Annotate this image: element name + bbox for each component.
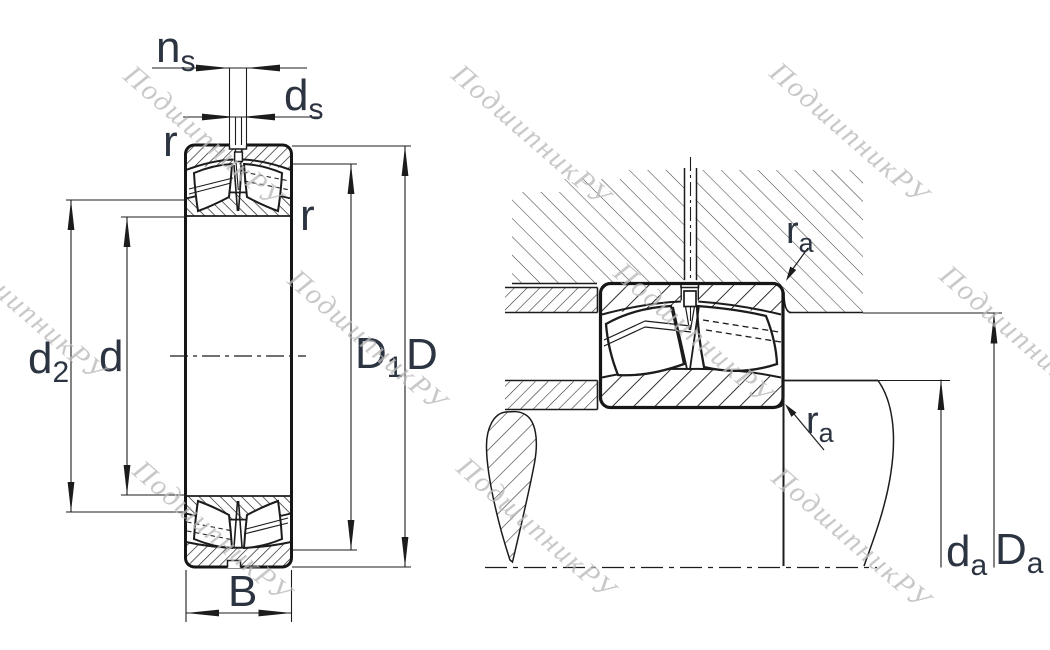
dimension-d xyxy=(124,217,131,495)
watermark-text: ПодшипникРУ xyxy=(450,450,624,607)
label-r-right: r xyxy=(300,191,315,240)
watermark-text: ПодшипникРУ xyxy=(445,57,619,214)
dimension-D1 xyxy=(348,164,355,550)
shaft-abutment-ring-section xyxy=(505,382,597,410)
housing-cover-ring-section xyxy=(505,288,597,313)
label-ns: ns xyxy=(156,23,195,78)
watermarks: ПодшипникРУ ПодшипникРУ ПодшипникРУ Подш… xyxy=(0,55,1050,617)
label-Da: Da xyxy=(995,525,1044,580)
label-da: da xyxy=(946,527,987,582)
label-ds: ds xyxy=(284,71,323,126)
drawing-canvas: ra ra da Da xyxy=(0,0,1050,650)
label-ra-bottom: ra xyxy=(806,400,835,448)
right-figure-mounting-cross-section: ra ra da Da xyxy=(485,157,1044,582)
bearing-technical-drawing: ra ra da Da xyxy=(0,0,1050,650)
watermark-text: ПодшипникРУ xyxy=(765,460,939,617)
